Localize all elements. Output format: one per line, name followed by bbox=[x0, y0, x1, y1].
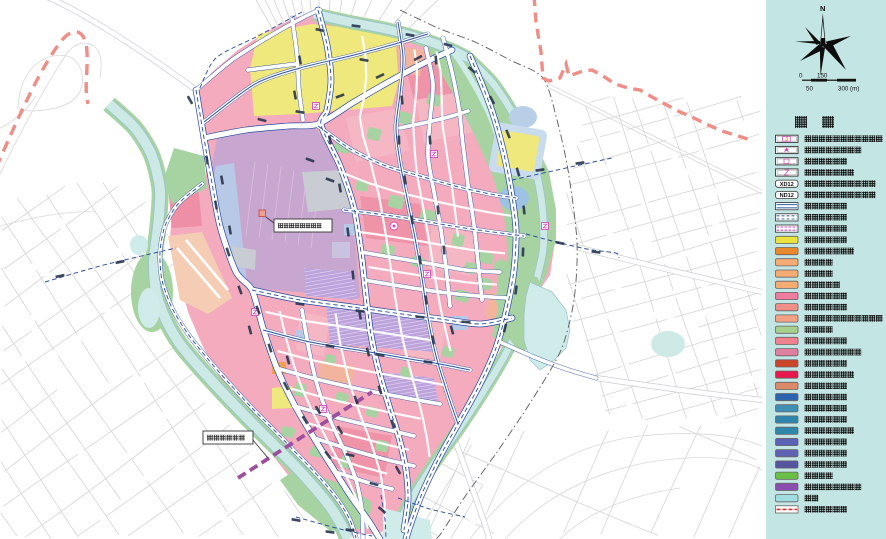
svg-text:N: N bbox=[820, 4, 825, 13]
svg-text:150: 150 bbox=[817, 73, 828, 80]
svg-text:J: J bbox=[785, 137, 788, 143]
svg-text:50: 50 bbox=[806, 86, 813, 93]
svg-text:XD12: XD12 bbox=[780, 182, 794, 188]
svg-text:ND12: ND12 bbox=[780, 193, 794, 199]
svg-text:0: 0 bbox=[799, 73, 803, 80]
svg-text:300 (m): 300 (m) bbox=[838, 86, 859, 93]
